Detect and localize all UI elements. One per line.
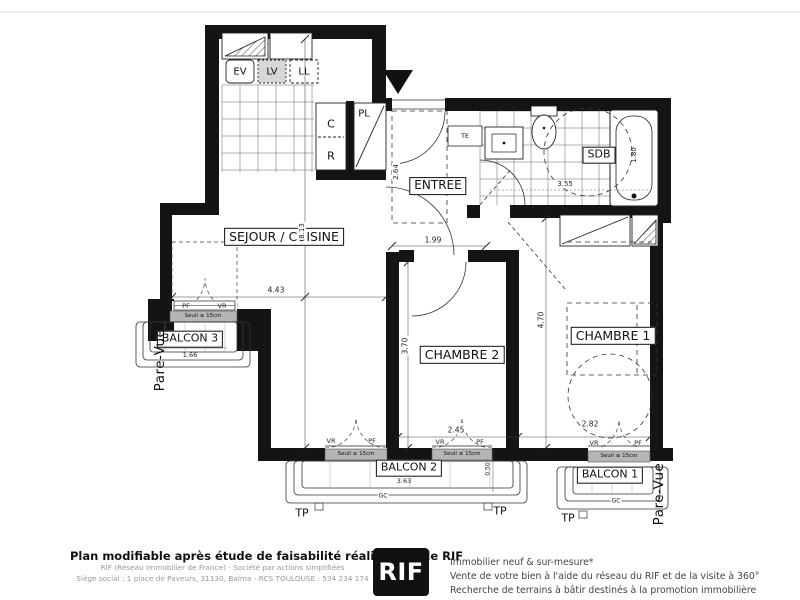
label-vr-sejour: VR [327, 437, 336, 445]
dim-chambre2-height: 3.70 [401, 337, 410, 356]
dim-entree-width: 1.99 [424, 236, 443, 245]
seuil-text-balcon3: Seuil ≤ 15cm [185, 313, 222, 319]
entrance-door-arc [392, 111, 445, 164]
footer-service-1: Immobilier neuf & sur-mesure* [450, 556, 780, 570]
footer-right-block: Immobilier neuf & sur-mesure* Vente de v… [450, 556, 780, 598]
room-label-chambre2: CHAMBRE 2 [420, 346, 505, 364]
tp-marker-2 [484, 503, 492, 510]
label-ev: EV [233, 67, 246, 78]
label-pf-chambre1: PF [634, 439, 642, 447]
label-pf-balcon3: PF [182, 302, 190, 310]
label-gc-balcon2: GC [378, 493, 389, 500]
label-te: TE [461, 132, 469, 140]
tp-marker-3 [579, 511, 587, 518]
label-pl-entree: PL [358, 109, 370, 120]
label-tp-1: TP [295, 507, 308, 520]
sdb-door-arc [480, 160, 525, 205]
pare-vue-left: Pare-Vue [152, 329, 168, 392]
label-vr-chambre2: VR [436, 438, 445, 446]
tp-marker-1 [315, 503, 323, 510]
label-tp-3: TP [561, 512, 574, 525]
dim-balcony-depth: 0.50 [485, 461, 492, 476]
seuil-text-chambre2: Seuil ≤ 15cm [444, 451, 481, 457]
counter-box [270, 33, 312, 59]
footer-address-line: Siège social : 1 place de Paveurs, 31130… [70, 574, 375, 585]
label-c: C [327, 118, 335, 131]
footer-left-block: Plan modifiable après étude de faisabili… [70, 549, 375, 584]
pare-vue-right: Pare-Vue [651, 463, 667, 526]
room-label-balcon1: BALCON 1 [577, 467, 643, 484]
toilet-icon [532, 115, 556, 149]
toilet-tank-icon [531, 106, 557, 116]
dim-bath-length: 1.80 [630, 146, 638, 164]
seuil-text-chambre1: Seuil ≤ 15cm [601, 453, 638, 459]
footer-company-line: RIF (Réseau Immobilier de France) - Soci… [70, 563, 375, 574]
label-lv: LV [266, 67, 277, 78]
entree-zone [392, 111, 447, 223]
room-label-chambre1: CHAMBRE 1 [571, 327, 656, 345]
label-r: R [327, 150, 335, 163]
dim-balcon2-width: 3.63 [396, 477, 412, 485]
room-label-balcon2: BALCON 2 [376, 460, 442, 477]
room-label-entree: ENTREE [409, 177, 466, 195]
sejour-door-arc [386, 187, 454, 255]
room-label-sdb: SDB [583, 147, 616, 164]
dim-balcon3-width: 1.66 [182, 351, 198, 359]
dim-sdb-width: 3.55 [556, 180, 574, 188]
label-pf-sejour: PF [368, 437, 376, 445]
label-pl-chambre1: PL [571, 206, 583, 217]
label-tp-2: TP [493, 505, 506, 518]
label-vr-balcon3: VR [218, 302, 227, 310]
kitchen-tile-grid [222, 85, 314, 172]
floor-plan-drawing [0, 0, 800, 600]
seuil-text-sejour: Seuil ≤ 15cm [338, 451, 375, 457]
entrance-arrow-icon [383, 70, 413, 94]
floor-plan-page: SEJOUR / CUISINE ENTREE SDB CHAMBRE 1 CH… [0, 0, 800, 600]
dim-sejour-width: 4.43 [267, 286, 286, 295]
chambre2-door-arc [412, 262, 466, 316]
dim-total-depth: 8.13 [298, 222, 306, 240]
label-pf-chambre2: PF [476, 438, 484, 446]
label-vr-chambre1: VR [590, 439, 599, 447]
rif-logo: RIF [373, 548, 429, 596]
footer-service-3: Recherche de terrains à bâtir destinés à… [450, 584, 780, 598]
footer-headline: Plan modifiable après étude de faisabili… [70, 549, 375, 563]
room-label-sejour: SEJOUR / CUISINE [224, 228, 344, 246]
dim-chambre2-width: 2.45 [447, 426, 466, 435]
dim-entree-depth: 2.64 [392, 163, 400, 181]
dim-chambre1-width: 2.82 [581, 420, 600, 429]
footer-service-2: Vente de votre bien à l'aide du réseau d… [450, 570, 780, 584]
label-gc-balcon1: GC [611, 498, 622, 505]
label-ll: LL [298, 67, 309, 78]
dim-chambre1-height: 4.70 [537, 311, 546, 330]
